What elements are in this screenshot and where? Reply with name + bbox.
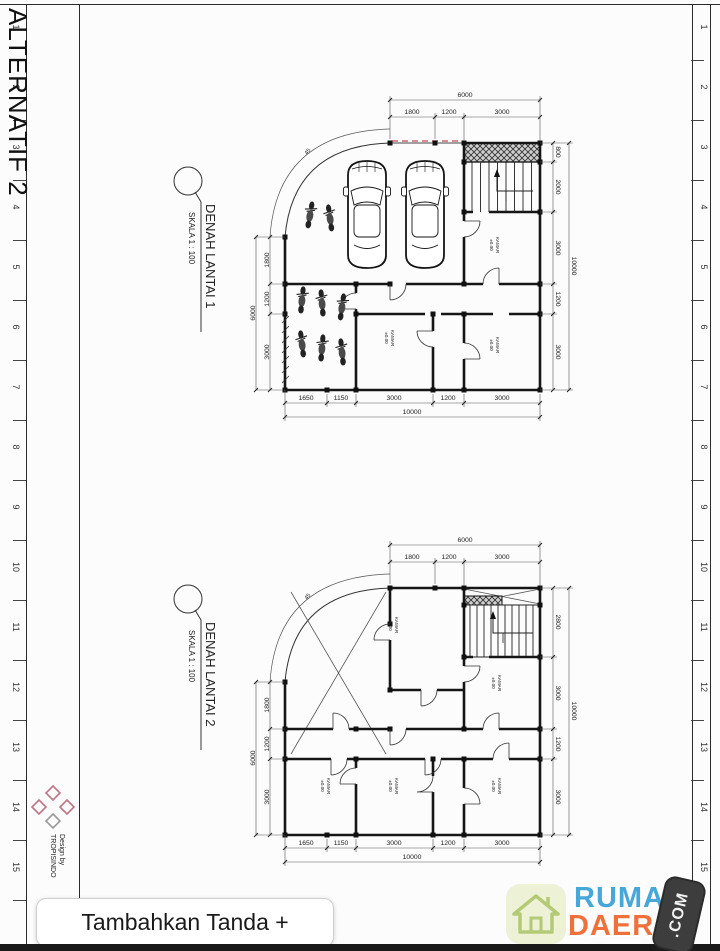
label-bubble-icon [174, 167, 202, 195]
svg-text:±0.00: ±0.00 [491, 677, 496, 689]
com-badge-text: .COM [665, 891, 693, 940]
floor-plan-2: 45 [243, 528, 585, 883]
walls [285, 588, 540, 835]
svg-text:1150: 1150 [334, 395, 349, 402]
svg-text:1800: 1800 [264, 252, 271, 267]
svg-text:KAMAR: KAMAR [495, 337, 500, 354]
motorcycle-icon [315, 334, 329, 362]
svg-text:6000: 6000 [457, 537, 472, 544]
motorcycle-icon [294, 330, 309, 358]
svg-text:±0.00: ±0.00 [388, 619, 393, 631]
svg-text:3000: 3000 [494, 840, 509, 847]
svg-text:KAMAR: KAMAR [497, 675, 502, 692]
site-watermark: RUMAH DAERAH .COM [500, 880, 710, 950]
plan2-label-block: DENAH LANTAI 2 SKALA 1 : 100 [165, 578, 235, 763]
house-icon [506, 884, 566, 944]
svg-text:1800: 1800 [264, 697, 271, 712]
svg-text:1200: 1200 [440, 395, 455, 402]
svg-text:1200: 1200 [440, 840, 455, 847]
svg-text:6000: 6000 [250, 305, 257, 320]
tropisindo-logo-icon [32, 786, 74, 828]
svg-text:3000: 3000 [554, 240, 561, 255]
motorcycle-icon [334, 293, 350, 322]
svg-text:±0.00: ±0.00 [320, 780, 325, 792]
stairs [464, 605, 540, 657]
svg-text:KAMAR: KAMAR [495, 237, 500, 254]
stairs [464, 162, 540, 212]
svg-text:3000: 3000 [494, 109, 509, 116]
plan1-label-block: DENAH LANTAI 1 SKALA 1 : 100 [165, 160, 235, 345]
door-swings [331, 624, 509, 804]
svg-text:1200: 1200 [264, 291, 271, 306]
designer-credit: Design by TROPISINDO [28, 782, 82, 912]
motorcycle-icon [335, 338, 350, 366]
svg-text:1200: 1200 [441, 554, 456, 561]
svg-text:3000: 3000 [554, 344, 561, 359]
svg-text:KAMAR: KAMAR [497, 778, 502, 795]
floor-plan-1: 45 [243, 83, 585, 435]
dimension-lines [256, 541, 573, 866]
svg-text:10000: 10000 [570, 702, 577, 721]
add-sign-button[interactable]: Tambahkan Tanda + [36, 898, 334, 947]
car-icon [402, 161, 449, 268]
svg-text:1800: 1800 [404, 109, 419, 116]
plan2-title: DENAH LANTAI 2 [203, 622, 218, 727]
svg-text:800: 800 [554, 146, 561, 158]
hatched-strip [464, 596, 502, 605]
motorcycle-icon [302, 200, 319, 229]
svg-text:±0.00: ±0.00 [489, 339, 494, 351]
dimension-texts: 6000 1800 1200 3000 2800 3000 1200 3000 … [250, 537, 577, 861]
svg-text:KAMAR: KAMAR [326, 778, 331, 795]
svg-text:3000: 3000 [264, 789, 271, 804]
curve-label: 45 [304, 593, 312, 602]
svg-text:±0.00: ±0.00 [388, 780, 393, 792]
svg-text:3000: 3000 [264, 344, 271, 359]
svg-text:1150: 1150 [334, 840, 349, 847]
hatched-strip [464, 143, 540, 162]
svg-text:1200: 1200 [441, 109, 456, 116]
svg-text:3000: 3000 [386, 840, 401, 847]
svg-text:3000: 3000 [386, 395, 401, 402]
svg-text:KAMAR: KAMAR [394, 778, 399, 795]
car-icon [344, 161, 391, 268]
dimension-ticks [254, 543, 571, 864]
plan2-scale: SKALA 1 : 100 [187, 630, 196, 683]
svg-text:10000: 10000 [570, 257, 577, 276]
svg-text:6000: 6000 [457, 92, 472, 99]
svg-text:1200: 1200 [554, 291, 561, 306]
svg-text:3000: 3000 [554, 685, 561, 700]
svg-text:1800: 1800 [404, 554, 419, 561]
sheet-title: ALTERNATIF 2 [2, 8, 33, 197]
svg-text:3000: 3000 [494, 554, 509, 561]
design-by-text: Design by [58, 834, 65, 866]
svg-text:1650: 1650 [298, 840, 313, 847]
svg-text:1650: 1650 [298, 395, 313, 402]
svg-text:±0.00: ±0.00 [384, 332, 389, 344]
label-bubble-icon [174, 585, 202, 613]
cars-group [344, 161, 449, 268]
studio-name: TROPISINDO [49, 834, 56, 878]
svg-text:2000: 2000 [554, 179, 561, 194]
svg-text:3000: 3000 [554, 789, 561, 804]
svg-text:1200: 1200 [264, 736, 271, 751]
svg-text:2800: 2800 [554, 614, 561, 629]
plan1-title: DENAH LANTAI 1 [203, 204, 218, 309]
ruler-right: 123456789101112131415 [690, 0, 720, 944]
columns [283, 586, 543, 838]
stair-arrow-icon [494, 169, 500, 177]
plan1-scale: SKALA 1 : 100 [187, 212, 196, 265]
frame-top-line [0, 4, 720, 5]
svg-text:10000: 10000 [403, 854, 422, 861]
svg-text:3000: 3000 [494, 395, 509, 402]
svg-text:1200: 1200 [554, 736, 561, 751]
svg-text:KAMAR: KAMAR [394, 617, 399, 634]
room-labels: KAMAR ±0.00 KAMAR ±0.00 KAMAR ±0.00 KAMA… [320, 617, 502, 795]
curve-label: 45 [304, 148, 312, 157]
svg-text:10000: 10000 [403, 409, 422, 416]
svg-text:±0.00: ±0.00 [489, 239, 494, 251]
svg-text:6000: 6000 [250, 750, 257, 765]
motorcycle-icon [295, 286, 310, 314]
drawing-sheet: 123456789101112131415 123456789101112131… [0, 0, 720, 951]
motorcycle-icon [322, 204, 338, 233]
motorcycle-icon [315, 289, 329, 317]
driveway-curve: 45 [270, 574, 390, 682]
svg-text:±0.00: ±0.00 [491, 780, 496, 792]
svg-text:KAMAR: KAMAR [390, 330, 395, 347]
